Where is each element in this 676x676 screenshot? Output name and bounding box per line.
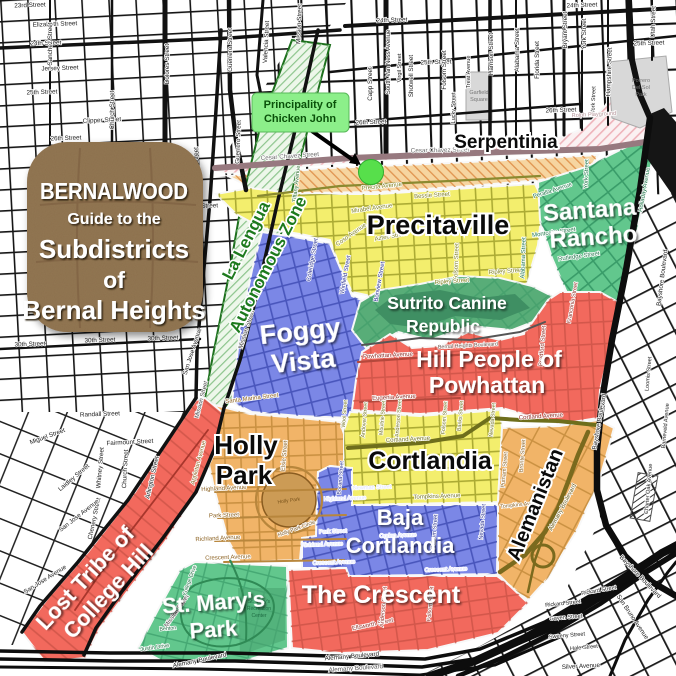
street-label: Bryant Street: [562, 11, 569, 48]
svg-text:Center: Center: [251, 613, 266, 619]
svg-text:Park: Park: [189, 615, 239, 643]
street-label: York Street: [583, 159, 590, 189]
label-sutrito-2: Republic: [406, 316, 480, 336]
label-cortlandia: Cortlandia: [368, 447, 493, 475]
street-label: Church Street: [109, 90, 116, 129]
street-label: Guerrero Street: [227, 28, 234, 72]
bernalwood-map-page: 23rd StreetElizabeth Street24th Street24…: [0, 0, 676, 676]
street-label: Florida Street: [534, 41, 541, 79]
street-label: 26th Street: [50, 134, 81, 142]
label-sutrito-1: Sutrito Canine: [387, 293, 507, 313]
street-label: Park Street: [209, 512, 240, 519]
street-label: Mission Street: [295, 4, 303, 44]
label-serpentinia: Serpentinia: [454, 132, 558, 153]
street-label: South Van Ness Avenue: [386, 29, 392, 94]
label-hill-people-1: Hill People of: [416, 346, 562, 372]
label-precitaville: Precitaville: [367, 210, 510, 240]
label-santana-rancho: Santana Rancho: [542, 194, 640, 254]
street-label: Lucky Street: [451, 92, 457, 124]
title-line-2: Guide to the: [67, 211, 160, 228]
street-label: 24th Street: [566, 1, 597, 9]
label-holly-park-1: Holly: [214, 430, 278, 460]
street-label: Alabama Street: [514, 28, 521, 72]
svg-text:Chicken John: Chicken John: [264, 113, 336, 125]
street-label: York Street: [581, 18, 588, 49]
svg-text:Park: Park: [635, 92, 647, 98]
street-label: Folsom Street: [441, 50, 448, 89]
title-card: BERNALWOOD Guide to the Subdistricts of …: [22, 142, 206, 332]
street-label: Virgil Street: [397, 53, 403, 82]
street-label: 30th Street: [14, 340, 45, 348]
chicken-john-dot: [359, 160, 384, 185]
street-label: 30th Street: [84, 336, 115, 344]
title-line-4: of: [103, 267, 125, 293]
street-label: Randall Street: [80, 410, 120, 418]
street-label: Treat Avenue: [466, 56, 472, 89]
street-label: 25th Street: [633, 39, 664, 47]
svg-text:Garfield: Garfield: [469, 90, 488, 96]
label-hill-people-2: Powhattan: [429, 372, 545, 398]
street-label: 26th Street: [355, 118, 386, 126]
street-label: Utah Street: [649, 6, 657, 38]
street-label: 24th Street: [376, 16, 407, 24]
title-line-1: BERNALWOOD: [40, 178, 188, 204]
street-label: Dolores Street: [164, 44, 171, 84]
street-label: York Street: [591, 86, 598, 114]
label-holly-park-2: Park: [216, 460, 273, 490]
svg-text:Potrero: Potrero: [632, 78, 650, 84]
svg-text:Del Sol: Del Sol: [632, 85, 650, 91]
bernal-map: 23rd StreetElizabeth Street24th Street24…: [0, 0, 676, 676]
street-label: 23rd Street: [14, 1, 46, 9]
street-label: 25th Street: [26, 88, 57, 96]
street-label: Harrison Street: [488, 33, 495, 76]
label-baja-1: Baja: [377, 505, 424, 530]
street-label: Shotwell Street: [408, 55, 415, 98]
svg-text:Principality of: Principality of: [264, 99, 337, 111]
label-baja-2: Cortlandia: [346, 533, 456, 558]
title-line-3: Subdistricts: [39, 234, 189, 264]
street-label: Capp Street: [367, 67, 374, 101]
label-foggy-vista: Foggy Vista: [258, 312, 345, 380]
street-label: Sanchez Street: [47, 22, 54, 65]
street-label: Park Street: [319, 528, 348, 535]
svg-text:Square: Square: [470, 97, 488, 103]
street-label: 30th Street: [147, 334, 178, 342]
label-the-crescent: The Crescent: [302, 581, 461, 609]
title-line-5: Bernal Heights: [22, 295, 206, 325]
